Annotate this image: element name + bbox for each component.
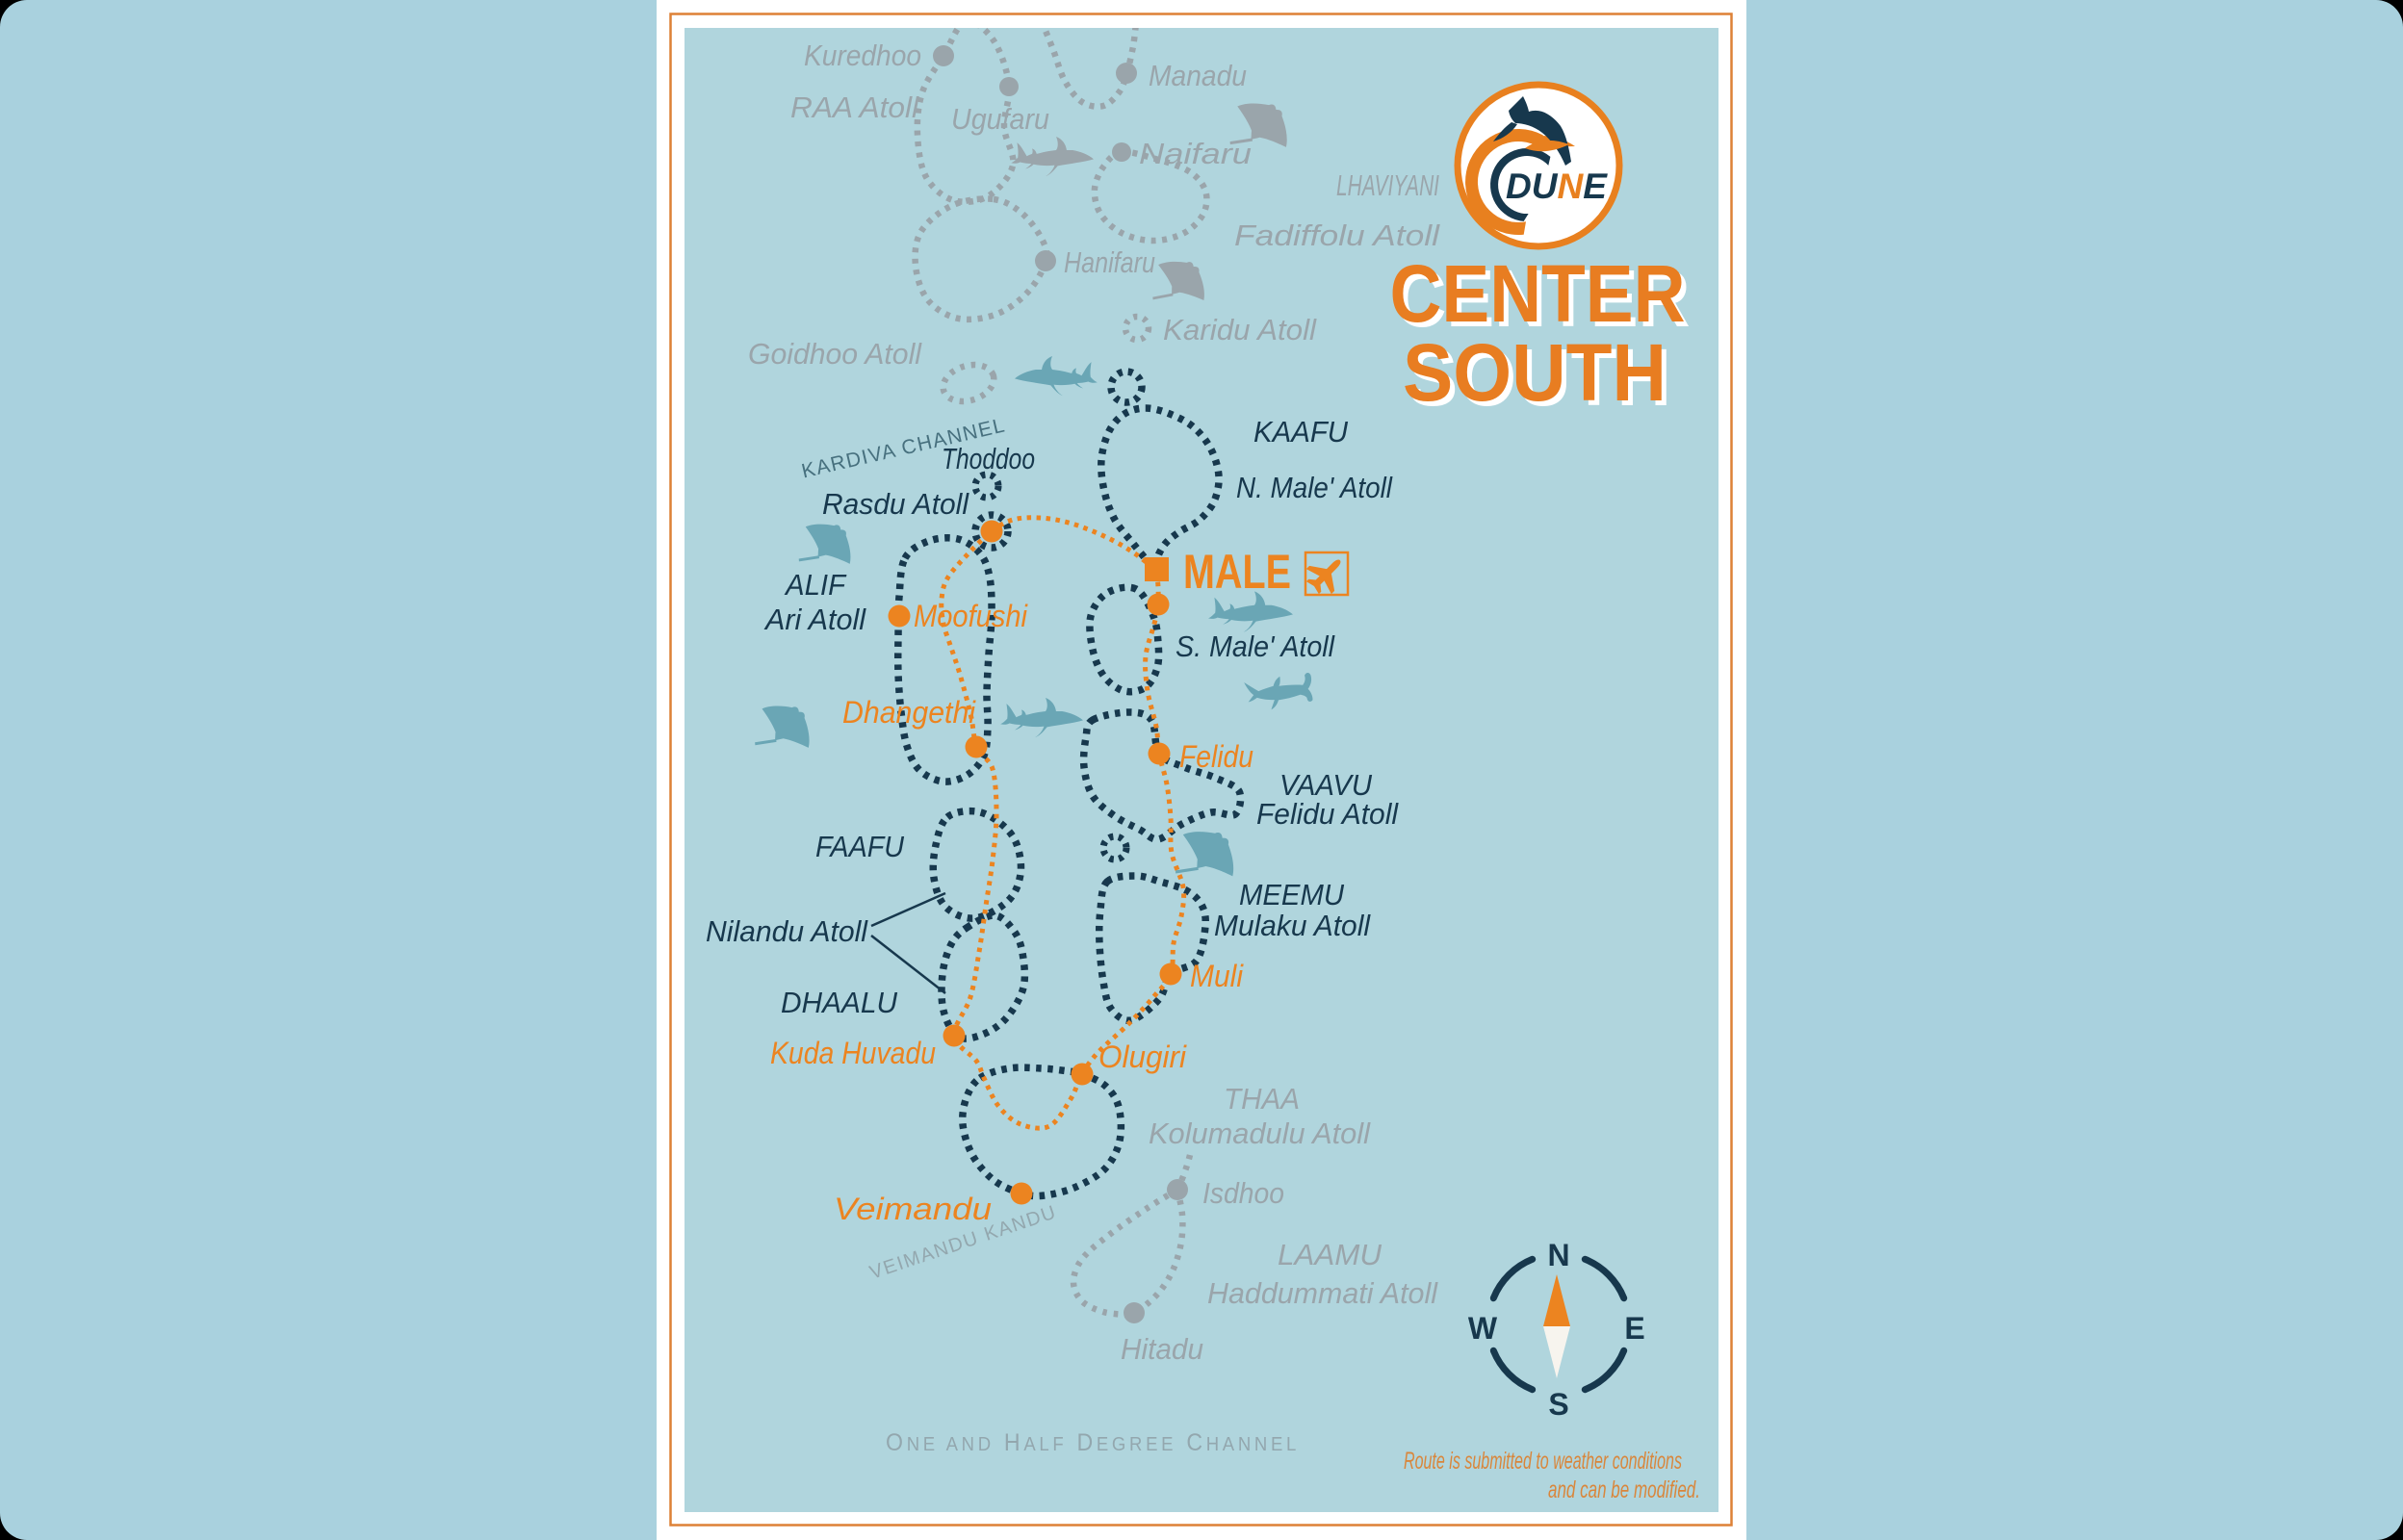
svg-text:Fadiffolu Atoll: Fadiffolu Atoll <box>1234 218 1440 252</box>
svg-text:DHAALU: DHAALU <box>781 986 898 1019</box>
svg-text:Haddummati Atoll: Haddummati Atoll <box>1207 1276 1438 1310</box>
svg-text:Hitadu: Hitadu <box>1121 1332 1203 1366</box>
svg-text:Manadu: Manadu <box>1149 59 1247 92</box>
svg-text:Thoddoo: Thoddoo <box>942 442 1035 475</box>
svg-text:Kolumadulu Atoll: Kolumadulu Atoll <box>1149 1116 1371 1150</box>
svg-text:E: E <box>1624 1311 1644 1346</box>
svg-text:Veimandu: Veimandu <box>834 1192 992 1226</box>
svg-text:Hanifaru: Hanifaru <box>1064 245 1155 279</box>
svg-text:and can be modified.: and can be modified. <box>1548 1476 1700 1503</box>
svg-text:FAAFU: FAAFU <box>815 830 905 863</box>
svg-text:Kuredhoo: Kuredhoo <box>804 38 921 72</box>
svg-text:MEEMU: MEEMU <box>1239 878 1345 911</box>
svg-text:Nilandu Atoll: Nilandu Atoll <box>706 914 868 948</box>
svg-text:N: N <box>1547 1238 1569 1272</box>
svg-text:Route is submitted to weather: Route is submitted to weather conditions <box>1404 1448 1682 1475</box>
svg-text:S: S <box>1548 1387 1568 1422</box>
svg-text:Ugufaru: Ugufaru <box>951 102 1049 136</box>
svg-text:DUNE: DUNE <box>1506 167 1608 206</box>
svg-text:Naifaru: Naifaru <box>1139 137 1252 170</box>
svg-text:Karidu Atoll: Karidu Atoll <box>1163 313 1317 346</box>
svg-text:MALE: MALE <box>1183 545 1291 599</box>
svg-text:Olugiri: Olugiri <box>1098 1039 1187 1074</box>
svg-text:ONE AND HALF DEGREE CHANNEL: ONE AND HALF DEGREE CHANNEL <box>886 1429 1300 1456</box>
svg-text:N. Male' Atoll: N. Male' Atoll <box>1236 471 1393 504</box>
svg-text:S. Male' Atoll: S. Male' Atoll <box>1176 629 1335 663</box>
svg-text:W: W <box>1468 1311 1498 1346</box>
svg-text:Felidu: Felidu <box>1179 739 1253 774</box>
svg-text:Kuda Huvadu: Kuda Huvadu <box>770 1036 936 1070</box>
svg-text:Mulaku Atoll: Mulaku Atoll <box>1214 909 1371 942</box>
svg-text:CENTER: CENTER <box>1390 248 1686 339</box>
svg-text:KAAFU: KAAFU <box>1253 415 1349 449</box>
svg-text:LHAVIYANI: LHAVIYANI <box>1336 168 1439 202</box>
svg-text:Isdhoo: Isdhoo <box>1202 1176 1284 1210</box>
svg-text:ALIF: ALIF <box>784 568 847 602</box>
svg-text:Moofushi: Moofushi <box>914 599 1028 633</box>
svg-text:Dhangethi: Dhangethi <box>842 695 976 730</box>
svg-text:Goidhoo Atoll: Goidhoo Atoll <box>748 337 922 371</box>
svg-text:THAA: THAA <box>1224 1082 1300 1116</box>
svg-text:RAA Atoll: RAA Atoll <box>790 90 919 124</box>
svg-text:Ari Atoll: Ari Atoll <box>763 603 866 636</box>
svg-text:Felidu Atoll: Felidu Atoll <box>1256 797 1399 831</box>
svg-text:LAAMU: LAAMU <box>1278 1238 1382 1271</box>
svg-text:Rasdu Atoll: Rasdu Atoll <box>822 487 969 521</box>
svg-text:Muli: Muli <box>1190 959 1244 993</box>
svg-text:SOUTH: SOUTH <box>1403 327 1667 418</box>
